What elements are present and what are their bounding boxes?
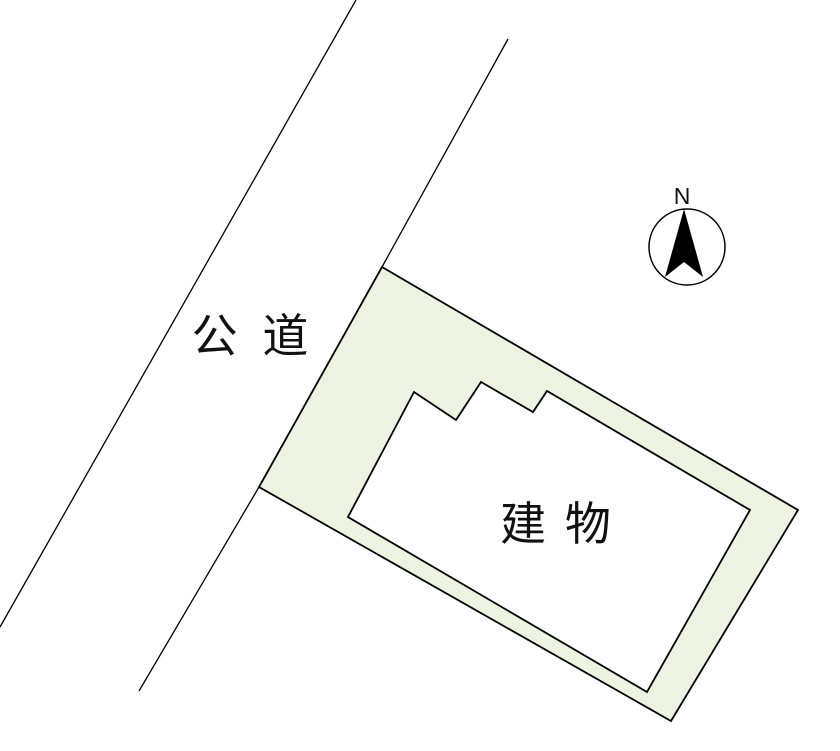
site-plan: 公 道 建 物 N bbox=[0, 0, 840, 751]
road-label: 公 道 bbox=[192, 310, 315, 362]
north-label: N bbox=[674, 183, 691, 209]
compass-north-indicator: N bbox=[649, 183, 725, 285]
building-label: 建 物 bbox=[500, 498, 614, 550]
site-plan-canvas: 公 道 建 物 N bbox=[0, 0, 840, 751]
